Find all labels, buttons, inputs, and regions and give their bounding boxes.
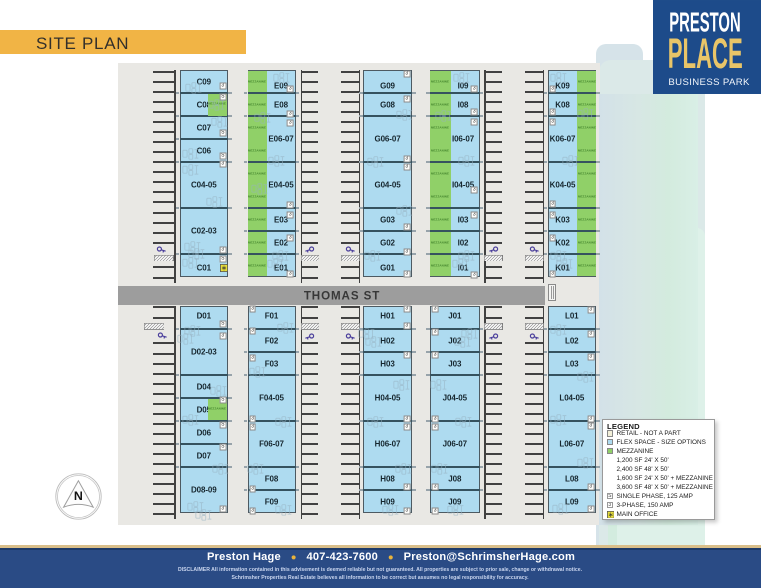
svg-text:PLACE: PLACE <box>668 30 743 78</box>
svg-text:BUSINESS PARK: BUSINESS PARK <box>668 77 750 88</box>
svg-text:N: N <box>74 488 83 502</box>
